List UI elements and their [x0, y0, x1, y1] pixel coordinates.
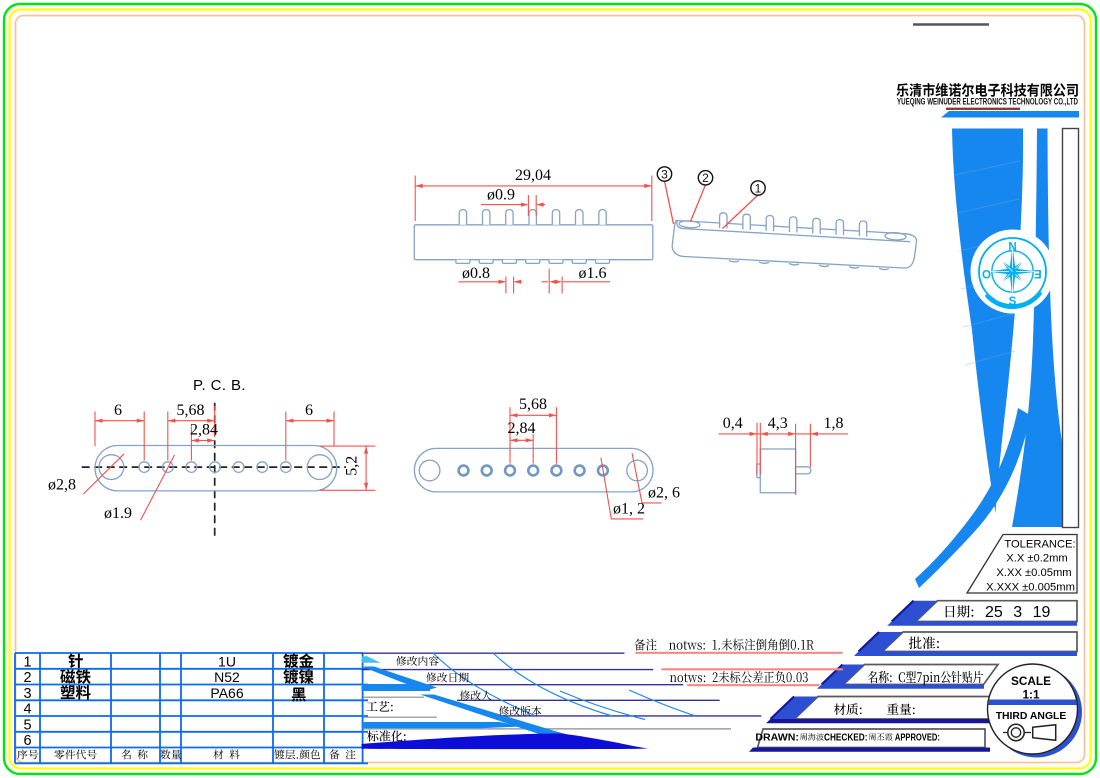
svg-text:5: 5 — [23, 717, 31, 733]
svg-text:ø1.6: ø1.6 — [579, 265, 607, 282]
svg-text:P. C. B.: P. C. B. — [193, 377, 246, 394]
svg-text:ø0.8: ø0.8 — [462, 265, 490, 282]
svg-text:CHECKED:: CHECKED: — [824, 733, 868, 744]
svg-text:4: 4 — [23, 702, 31, 718]
svg-text:S: S — [1009, 296, 1017, 308]
svg-text:5,2: 5,2 — [344, 456, 361, 476]
svg-text:X.X ±0.2mm: X.X ±0.2mm — [1006, 553, 1067, 565]
svg-text:4,3: 4,3 — [768, 415, 788, 432]
svg-text:6: 6 — [305, 402, 313, 419]
svg-text:1,8: 1,8 — [824, 415, 844, 432]
svg-text:2,84: 2,84 — [190, 422, 218, 439]
svg-text:6: 6 — [114, 402, 122, 419]
svg-text:SCALE: SCALE — [1011, 674, 1051, 688]
svg-text:ø2,8: ø2,8 — [48, 477, 76, 494]
svg-text:5,68: 5,68 — [177, 402, 205, 419]
svg-text:X.XXX ±0.005mm: X.XXX ±0.005mm — [986, 582, 1075, 594]
svg-text:THIRD ANGLE: THIRD ANGLE — [996, 711, 1067, 722]
svg-text:25 3 19: 25 3 19 — [985, 604, 1050, 621]
svg-text:6: 6 — [23, 733, 31, 749]
svg-text:1:1: 1:1 — [1022, 688, 1039, 702]
svg-text:ø1, 2: ø1, 2 — [613, 501, 645, 518]
svg-text:YUEQING WEINUDER ELECTRONICS T: YUEQING WEINUDER ELECTRONICS TECHNOLOGY … — [897, 96, 1078, 107]
svg-text:ø2, 6: ø2, 6 — [648, 485, 680, 502]
svg-text:N: N — [1008, 242, 1016, 254]
svg-text:X.XX ±0.05mm: X.XX ±0.05mm — [996, 567, 1071, 579]
svg-text:PA66: PA66 — [210, 685, 243, 701]
svg-text:2: 2 — [702, 171, 709, 185]
svg-text:N52: N52 — [214, 669, 240, 685]
svg-text:O: O — [982, 270, 991, 282]
svg-text:3: 3 — [23, 686, 31, 702]
svg-text:ø0.9: ø0.9 — [487, 187, 515, 204]
svg-text:APPROVED:: APPROVED: — [895, 733, 940, 744]
svg-text:1U: 1U — [218, 653, 236, 669]
svg-text:2: 2 — [23, 670, 31, 686]
svg-text:ø1.9: ø1.9 — [104, 505, 132, 522]
svg-text:DRAWN:: DRAWN: — [755, 733, 799, 744]
svg-text:1: 1 — [23, 654, 31, 670]
svg-text:0,4: 0,4 — [723, 415, 743, 432]
svg-text:2,84: 2,84 — [508, 420, 536, 437]
svg-text:5,68: 5,68 — [519, 396, 547, 413]
svg-text:1: 1 — [755, 181, 762, 195]
svg-text:E: E — [1034, 270, 1042, 282]
svg-text:3: 3 — [661, 167, 668, 181]
svg-text:29,04: 29,04 — [515, 167, 551, 184]
svg-text:TOLERANCE:: TOLERANCE: — [1004, 539, 1075, 551]
